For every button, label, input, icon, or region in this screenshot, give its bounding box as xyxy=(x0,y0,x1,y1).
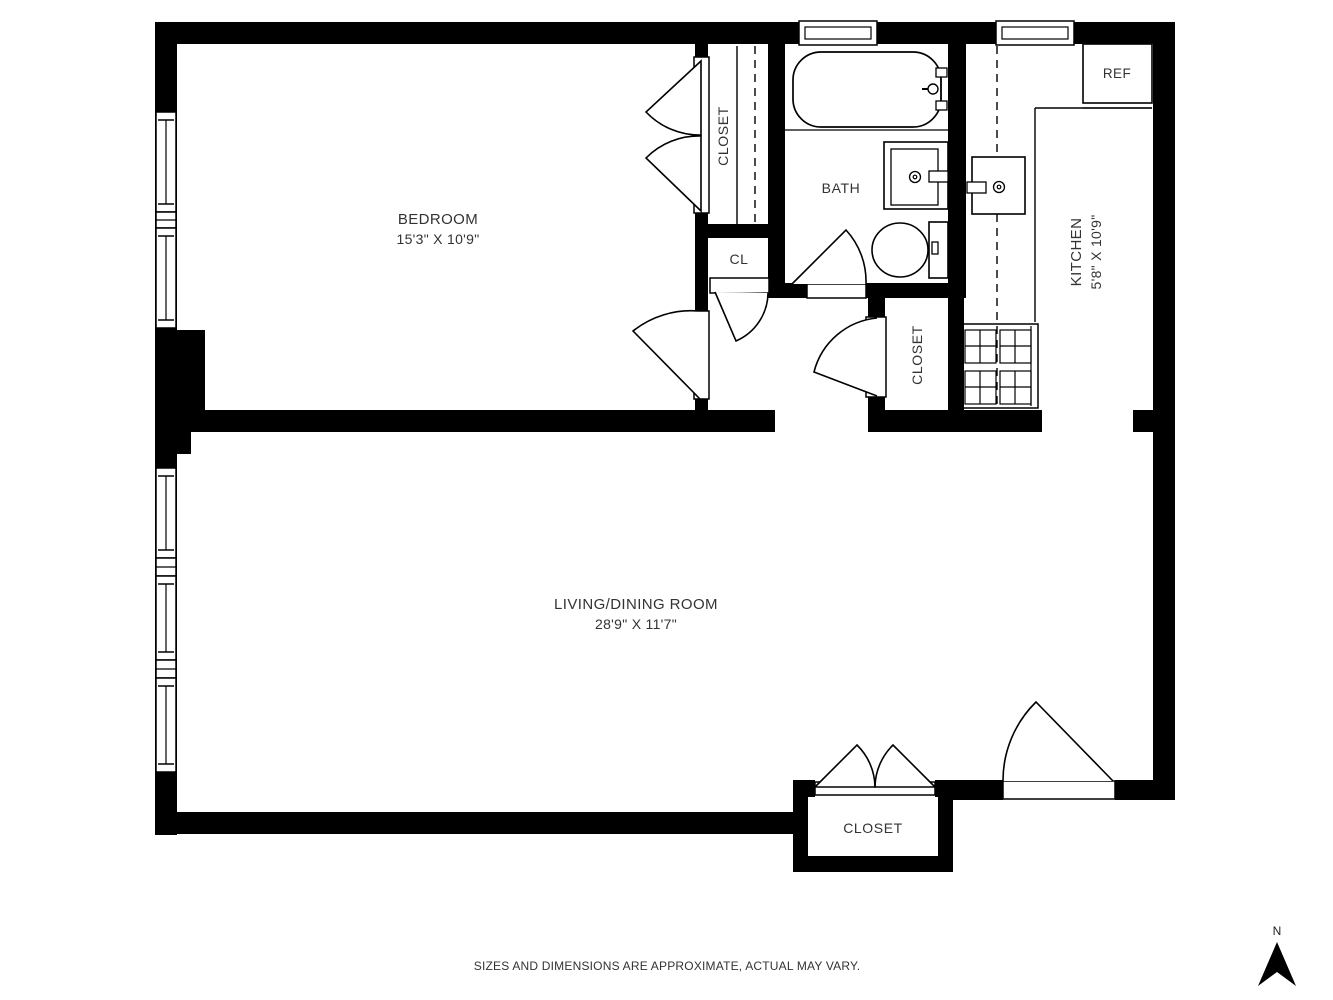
entry-closet-door-left xyxy=(815,745,875,787)
bathtub xyxy=(785,52,948,130)
toilet xyxy=(872,222,948,278)
bedroom-closet-name: CLOSET xyxy=(714,106,732,166)
kitchen-label: KITCHEN 5'8" X 10'9" xyxy=(1067,215,1105,290)
bath-window xyxy=(799,21,877,45)
kitchen-sink xyxy=(967,157,1025,214)
entry-door-swing xyxy=(1003,702,1113,781)
entry-closet-door-right xyxy=(875,745,935,787)
stove xyxy=(960,324,1038,408)
cl-label: CL xyxy=(729,250,748,268)
entry-closet-name: CLOSET xyxy=(843,819,903,837)
bedroom-name: BEDROOM xyxy=(396,210,479,230)
bedroom-closet-door-lower xyxy=(646,136,701,211)
burners xyxy=(965,330,1031,404)
entry-door-opening xyxy=(1003,781,1115,799)
kitchen-name: KITCHEN xyxy=(1067,215,1087,290)
hall-closet-name: CLOSET xyxy=(908,325,926,385)
living-window-group xyxy=(156,468,176,772)
bedroom-closet-door-upper xyxy=(646,61,701,135)
bedroom-dims: 15'3" X 10'9" xyxy=(396,230,479,248)
refrigerator-label: REF xyxy=(1103,65,1131,83)
cl-door-swing xyxy=(715,292,768,341)
north-label: N xyxy=(1273,924,1282,938)
bath-label: BATH xyxy=(822,179,861,197)
hall-closet-door-swing xyxy=(814,318,877,396)
kitchen-dims: 5'8" X 10'9" xyxy=(1087,215,1105,290)
living-dining-name: LIVING/DINING ROOM xyxy=(554,595,718,615)
north-arrow-icon xyxy=(1258,942,1296,986)
windows xyxy=(156,21,1074,772)
bedroom-window-group xyxy=(156,112,176,328)
living-dining-dims: 28'9" X 11'7" xyxy=(554,615,718,633)
bath-name: BATH xyxy=(822,179,861,197)
bedroom-closet-label: CLOSET xyxy=(714,106,732,166)
bath-door-opening xyxy=(807,284,866,298)
bedroom-closet-interior-lines xyxy=(737,46,755,224)
cl-door-opening xyxy=(710,278,769,293)
bath-door-swing xyxy=(792,230,866,284)
kitchen-window xyxy=(996,21,1074,45)
bedroom-label: BEDROOM 15'3" X 10'9" xyxy=(396,210,479,248)
bedroom-door-swing xyxy=(633,311,700,399)
refrigerator-name: REF xyxy=(1103,65,1131,83)
floorplan-page: BEDROOM 15'3" X 10'9" LIVING/DINING ROOM… xyxy=(0,0,1333,1000)
hall-closet-label: CLOSET xyxy=(908,325,926,385)
disclaimer-text: SIZES AND DIMENSIONS ARE APPROXIMATE, AC… xyxy=(474,959,860,973)
cl-name: CL xyxy=(729,250,748,268)
entry-closet-label: CLOSET xyxy=(843,819,903,837)
bath-sink xyxy=(884,142,948,209)
living-dining-label: LIVING/DINING ROOM 28'9" X 11'7" xyxy=(554,595,718,633)
floorplan-drawing xyxy=(0,0,1333,1000)
